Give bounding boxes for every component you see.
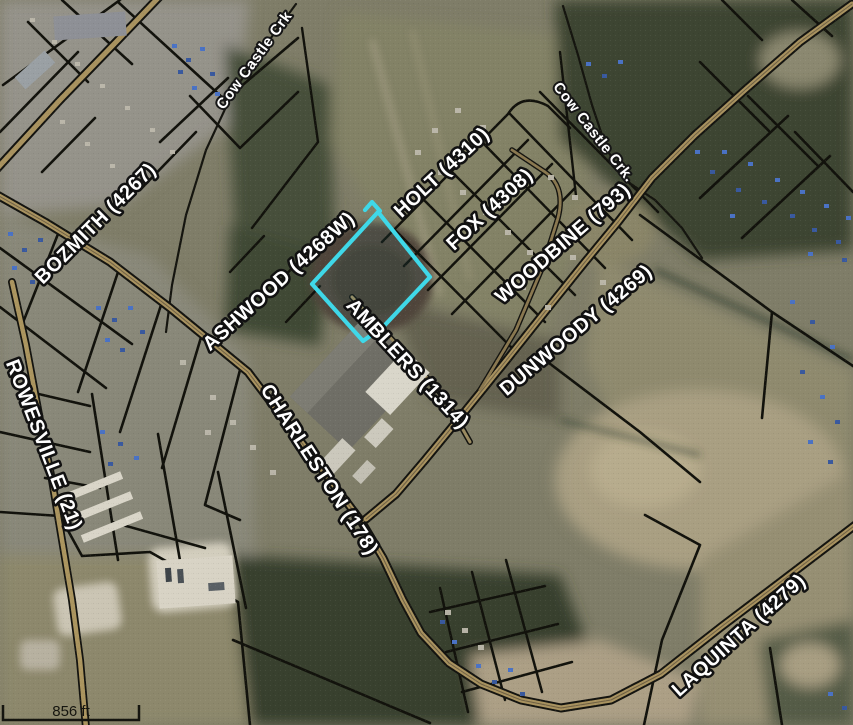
- gis-map-viewport[interactable]: BOZMITH (4267) ROWESVILLE (21) ASHWOOD (…: [0, 0, 853, 725]
- photo-grain-overlay: [0, 0, 853, 725]
- parcel-map[interactable]: BOZMITH (4267) ROWESVILLE (21) ASHWOOD (…: [0, 0, 853, 725]
- scale-bar-label: 856 ft: [52, 703, 90, 720]
